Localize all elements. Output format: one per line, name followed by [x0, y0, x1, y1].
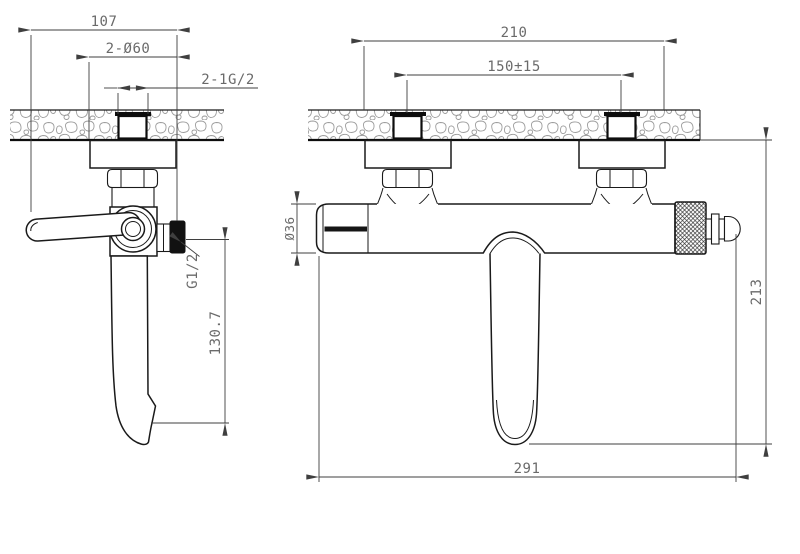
valve-neck-side [112, 188, 154, 208]
dim-inlet-thread: 2-1G/2 [104, 72, 258, 114]
hex-nut-side [108, 170, 158, 188]
escutcheon-side [90, 141, 176, 169]
wall-hatch-right [308, 110, 700, 140]
dim-label-2-d60: 2-Ø60 [106, 41, 151, 57]
wall-section-right [308, 110, 700, 140]
spout-side [111, 256, 156, 444]
technical-drawing-page: 107 2-Ø60 2-1G/2 G1/2 130.7 [0, 0, 800, 554]
shower-outlet [675, 202, 740, 254]
dim-label-150-15: 150±15 [487, 59, 541, 75]
escutcheon-left [365, 141, 451, 169]
hex-nut-left [383, 170, 433, 188]
dim-label-g12: G1/2 [185, 253, 201, 289]
outlet-side [157, 221, 185, 253]
nipple-dome [725, 217, 741, 242]
dim-label-291: 291 [514, 461, 541, 477]
nipple-collar-2 [719, 219, 725, 239]
outlet-knurl-black [170, 221, 185, 253]
inlet-square [608, 116, 636, 139]
inlet-fitting-left [390, 114, 426, 139]
dim-label-d36: Ø36 [282, 216, 297, 240]
dim-body-diameter: Ø36 [282, 204, 316, 253]
nipple-flange [712, 214, 720, 244]
spout-tube [490, 254, 540, 445]
spout-front [483, 232, 545, 445]
dim-label-2-1g2: 2-1G/2 [201, 72, 255, 88]
front-view: 210 150±15 Ø36 213 291 [282, 25, 772, 482]
inlet-square [119, 116, 147, 139]
dim-label-210: 210 [501, 25, 528, 41]
hex-nut-right [597, 170, 647, 188]
escutcheon-right [579, 141, 665, 169]
dim-label-130-7: 130.7 [208, 311, 224, 356]
faucet-technical-drawing: 107 2-Ø60 2-1G/2 G1/2 130.7 [0, 0, 800, 554]
inlet-square [394, 116, 422, 139]
inlet-fitting-side [115, 114, 151, 139]
dim-inlet-spacing: 150±15 [407, 59, 621, 113]
side-view: 107 2-Ø60 2-1G/2 G1/2 130.7 [10, 14, 258, 444]
inlet-fitting-right [604, 114, 640, 139]
nipple-collar-1 [706, 219, 712, 239]
dim-label-213: 213 [749, 279, 765, 306]
body-indicator-band [325, 227, 368, 232]
knurled-nut [675, 202, 706, 254]
handle-hub-outer [122, 218, 145, 241]
dim-label-107: 107 [91, 14, 118, 30]
